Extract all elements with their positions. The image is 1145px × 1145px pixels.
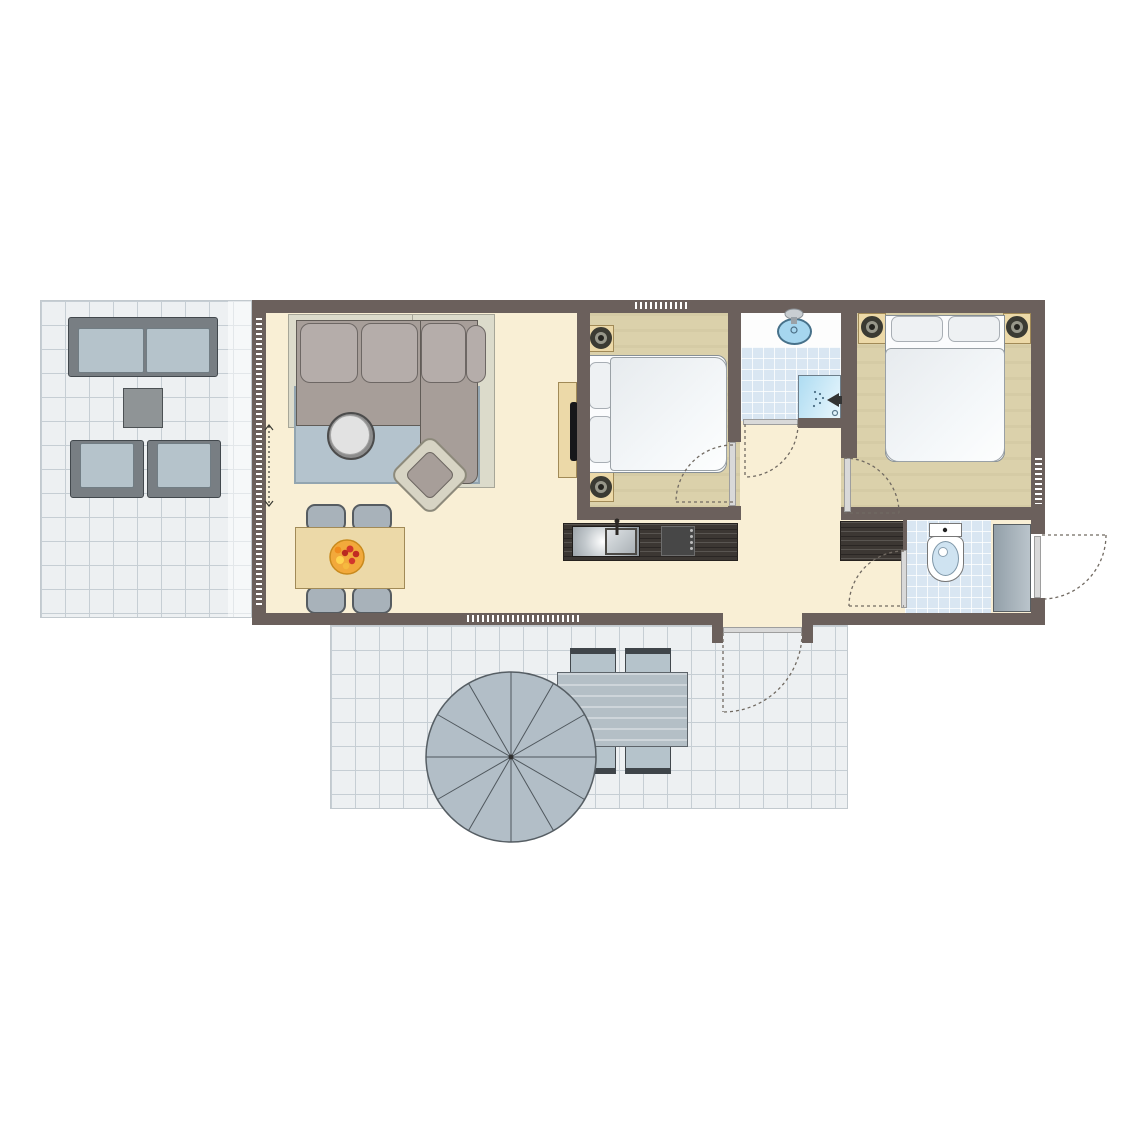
- parasol: [426, 672, 596, 842]
- fruit-bowl: [330, 540, 364, 574]
- kitchen-faucet-icon: [615, 519, 620, 536]
- bathroom-door-arc: [745, 424, 798, 477]
- curtain-marking: [265, 425, 273, 506]
- door-arcs: [676, 424, 1106, 712]
- plan-overlay: [0, 0, 1145, 1145]
- bedroom-2-door-arc: [844, 458, 899, 513]
- front-door-arc: [1042, 535, 1106, 599]
- terrace-door-arc: [723, 633, 802, 712]
- faucet-icon: [785, 309, 803, 333]
- floor-plan: [0, 0, 1145, 1145]
- shower-head-icon: [813, 391, 842, 416]
- bedroom-1-door-arc: [676, 445, 733, 502]
- toilet-flush-dot: [943, 528, 947, 532]
- toilet-door-arc: [849, 551, 904, 606]
